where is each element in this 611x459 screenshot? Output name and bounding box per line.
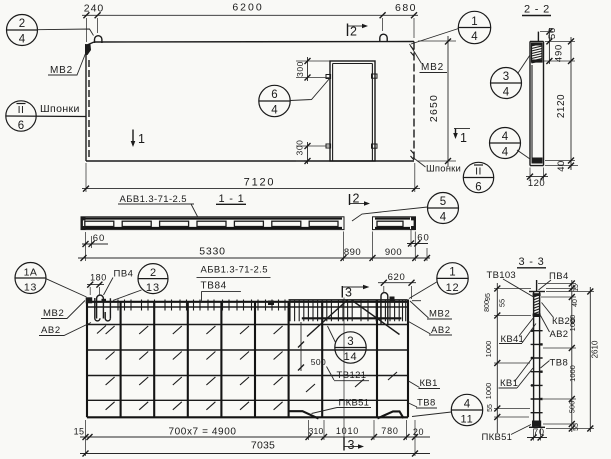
svg-text:3: 3 (347, 336, 353, 348)
svg-text:780: 780 (381, 426, 398, 436)
svg-text:5: 5 (440, 196, 446, 208)
svg-text:60: 60 (93, 233, 106, 244)
svg-text:КВ29: КВ29 (552, 316, 576, 327)
svg-text:Шпонки: Шпонки (426, 164, 461, 175)
svg-text:ТВ84: ТВ84 (201, 280, 227, 291)
svg-text:II: II (18, 104, 25, 116)
svg-text:1: 1 (460, 131, 467, 145)
svg-text:12: 12 (446, 282, 460, 294)
svg-text:70: 70 (533, 427, 545, 437)
svg-text:ПКВ51: ПКВ51 (339, 397, 370, 408)
svg-text:40: 40 (556, 160, 567, 172)
svg-text:60: 60 (417, 233, 430, 244)
svg-text:3 - 3: 3 - 3 (518, 256, 544, 268)
svg-text:2650: 2650 (428, 94, 440, 122)
svg-text:МВ2: МВ2 (421, 62, 444, 73)
svg-text:ТВ8: ТВ8 (550, 358, 569, 369)
svg-text:900: 900 (385, 247, 402, 258)
svg-text:ПКВ51: ПКВ51 (482, 432, 513, 443)
svg-text:АВ2: АВ2 (550, 329, 569, 340)
svg-text:14: 14 (344, 351, 358, 363)
svg-text:2: 2 (353, 192, 360, 206)
svg-text:680: 680 (395, 2, 417, 14)
svg-text:300: 300 (295, 140, 305, 156)
svg-text:55: 55 (573, 423, 580, 431)
svg-text:ТВ8: ТВ8 (417, 398, 436, 409)
svg-text:ТВ103: ТВ103 (487, 270, 517, 281)
svg-text:2: 2 (150, 267, 156, 279)
svg-text:3: 3 (345, 286, 352, 300)
svg-text:4: 4 (440, 212, 447, 224)
svg-text:6200: 6200 (232, 2, 263, 14)
svg-text:120: 120 (528, 178, 545, 189)
svg-text:50: 50 (547, 27, 558, 39)
svg-text:1000: 1000 (484, 383, 493, 400)
svg-text:4: 4 (271, 105, 278, 117)
svg-text:500: 500 (311, 357, 326, 367)
svg-text:490: 490 (554, 44, 565, 62)
svg-text:300: 300 (295, 61, 305, 77)
svg-text:3: 3 (503, 71, 509, 83)
svg-text:15: 15 (573, 284, 580, 292)
svg-text:15: 15 (74, 427, 85, 437)
svg-text:7120: 7120 (244, 177, 276, 189)
svg-text:2120: 2120 (556, 94, 567, 118)
svg-text:1010: 1010 (336, 426, 359, 436)
svg-text:55: 55 (498, 299, 507, 307)
svg-text:4: 4 (464, 399, 471, 411)
svg-text:1: 1 (138, 132, 145, 146)
svg-text:20: 20 (413, 427, 424, 437)
svg-text:6: 6 (475, 182, 481, 194)
svg-text:11: 11 (460, 414, 473, 426)
svg-text:МВ2: МВ2 (50, 65, 73, 76)
svg-text:МВ2: МВ2 (43, 308, 64, 319)
svg-text:МВ2: МВ2 (429, 308, 450, 319)
svg-text:4: 4 (503, 87, 510, 99)
svg-text:620: 620 (388, 272, 406, 283)
svg-text:4: 4 (502, 131, 509, 143)
svg-text:7035: 7035 (251, 440, 275, 452)
svg-text:1 - 1: 1 - 1 (219, 193, 245, 205)
svg-text:1: 1 (471, 16, 477, 28)
svg-text:ПВ4: ПВ4 (114, 269, 134, 280)
svg-text:1000: 1000 (484, 341, 493, 358)
svg-text:240: 240 (84, 3, 105, 15)
svg-text:500: 500 (568, 401, 577, 414)
svg-text:800: 800 (484, 300, 491, 312)
svg-text:АВ2: АВ2 (41, 325, 61, 336)
svg-text:1: 1 (449, 267, 455, 279)
svg-text:АБВ1.3-71-2.5: АБВ1.3-71-2.5 (201, 264, 268, 275)
svg-text:6: 6 (18, 120, 24, 132)
svg-text:700х7 = 4900: 700х7 = 4900 (168, 427, 236, 438)
svg-text:4: 4 (471, 31, 478, 43)
svg-text:II: II (475, 166, 482, 178)
svg-text:4: 4 (19, 34, 26, 46)
svg-text:180: 180 (90, 273, 107, 283)
svg-text:5330: 5330 (199, 246, 226, 258)
svg-text:ТВ121: ТВ121 (337, 370, 367, 381)
svg-text:Шпонки: Шпонки (40, 103, 80, 115)
svg-text:КВ1: КВ1 (420, 378, 438, 389)
svg-text:13: 13 (146, 282, 160, 294)
svg-text:95: 95 (485, 293, 492, 301)
svg-text:1А: 1А (24, 267, 38, 279)
svg-text:1000: 1000 (568, 365, 577, 382)
svg-text:АБВ1.3-71-2.5: АБВ1.3-71-2.5 (120, 194, 187, 205)
svg-text:55: 55 (487, 404, 494, 412)
svg-text:АВ2: АВ2 (431, 325, 451, 336)
svg-text:6: 6 (271, 89, 277, 101)
svg-text:2 - 2: 2 - 2 (524, 4, 550, 16)
svg-text:310: 310 (309, 426, 324, 436)
svg-text:13: 13 (24, 282, 37, 294)
svg-text:2: 2 (350, 25, 357, 39)
svg-text:4: 4 (502, 147, 509, 159)
svg-text:ПВ4: ПВ4 (549, 271, 569, 282)
svg-text:40: 40 (572, 299, 579, 307)
svg-text:3: 3 (348, 438, 355, 452)
svg-text:2: 2 (19, 18, 25, 30)
svg-text:890: 890 (344, 247, 361, 258)
svg-text:2610: 2610 (591, 340, 600, 358)
